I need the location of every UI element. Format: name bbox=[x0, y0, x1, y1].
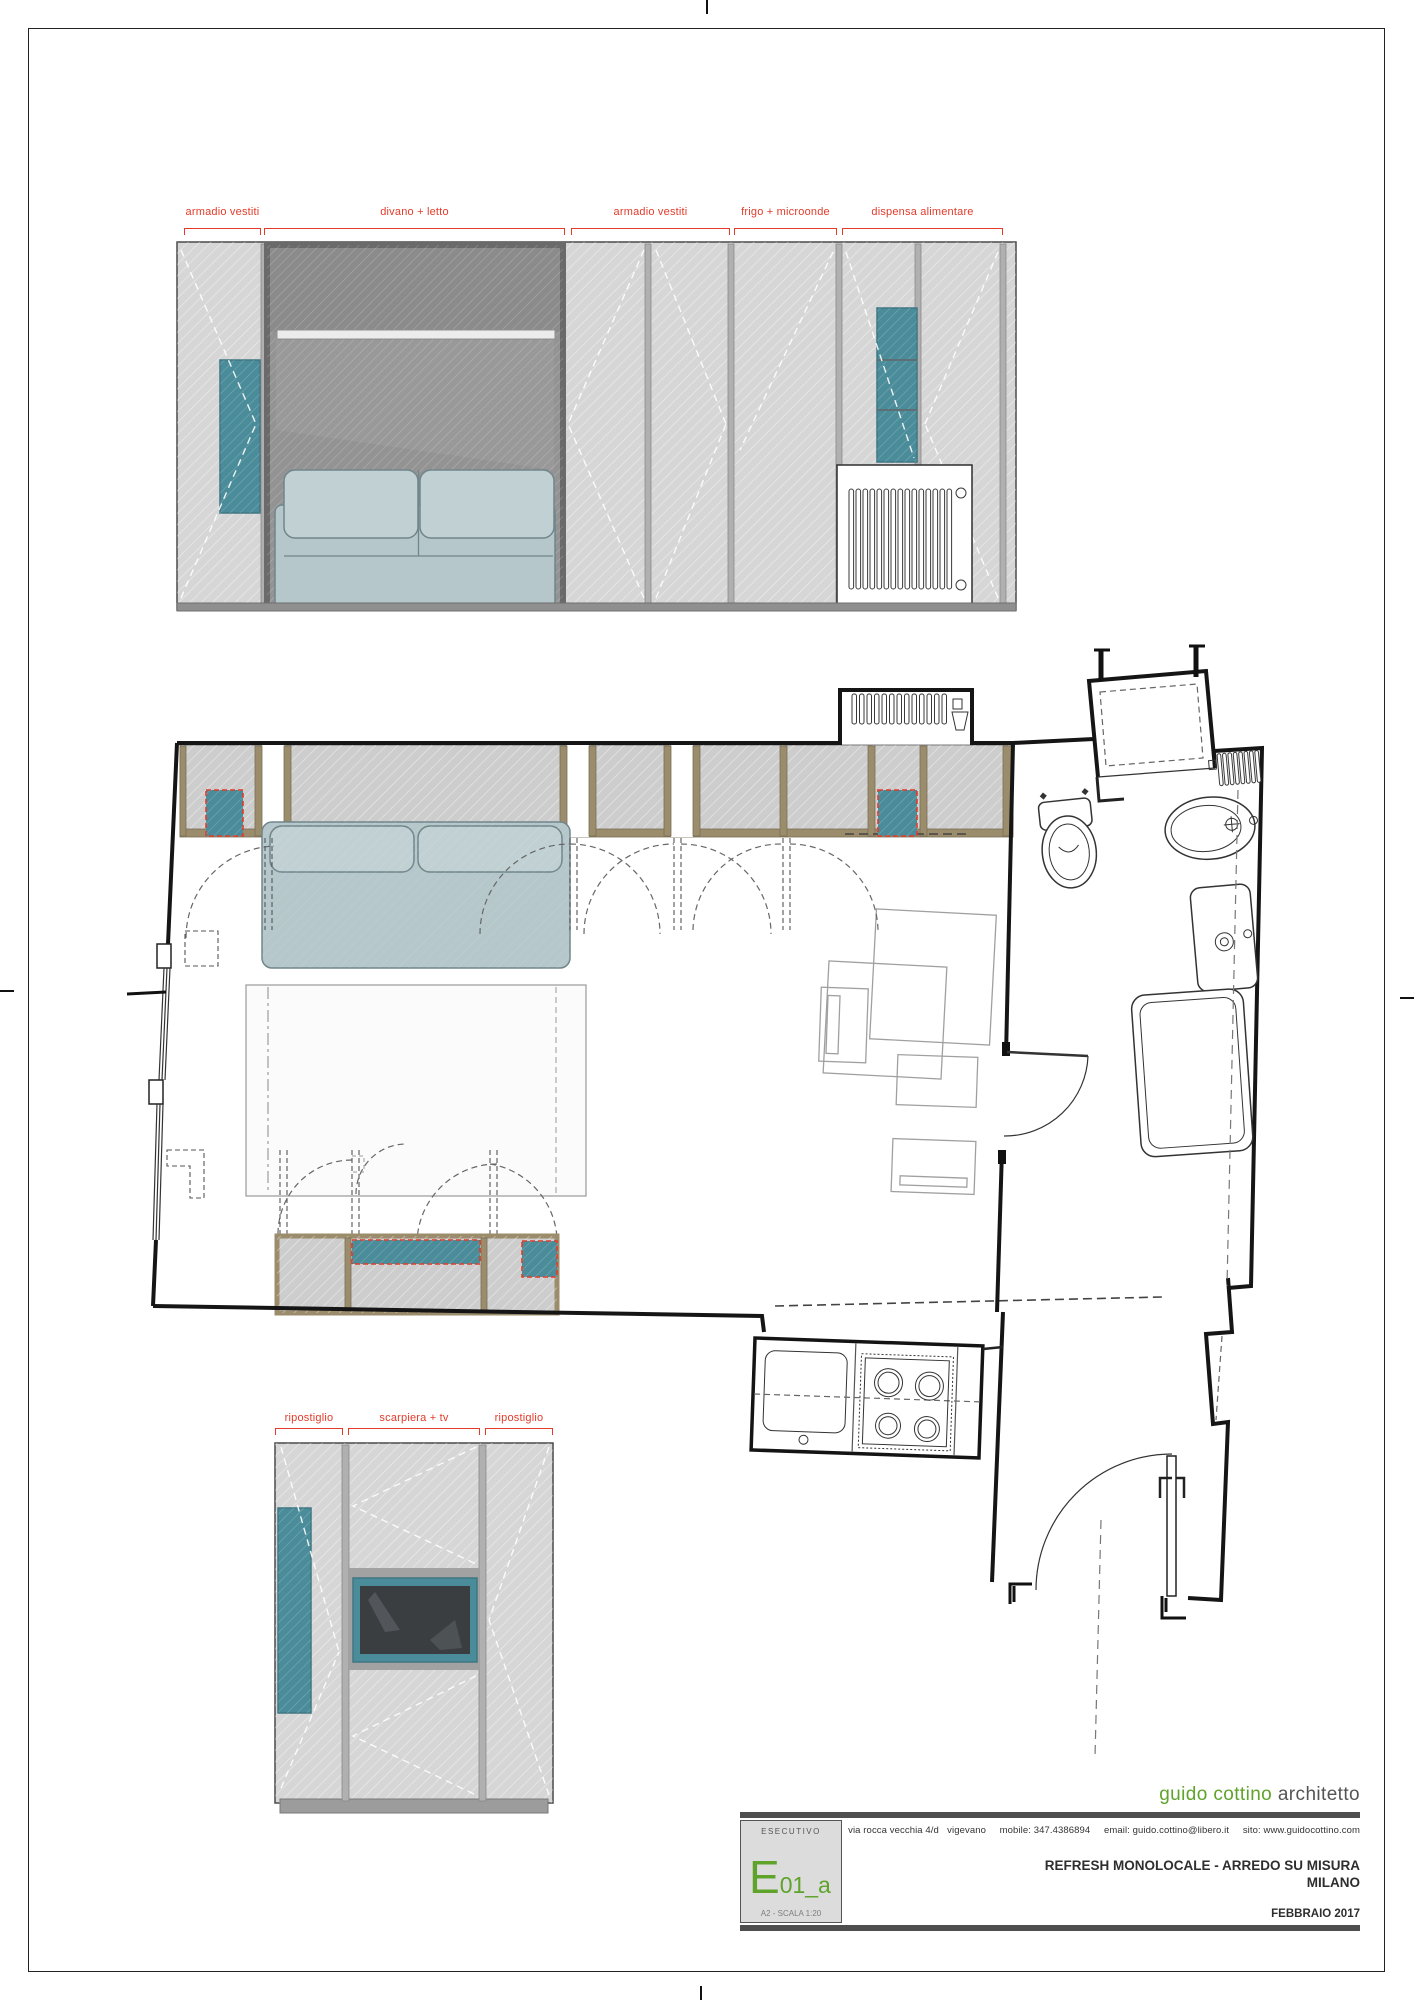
left-wall-dashed-outlines bbox=[167, 931, 218, 1198]
plan-teal-shelf-left bbox=[206, 790, 243, 836]
label-bracket bbox=[485, 1428, 553, 1436]
label-frigo-microonde: frigo + microonde bbox=[734, 206, 837, 218]
window-hardware bbox=[149, 1080, 163, 1104]
titleblock-rule-top bbox=[740, 1812, 1360, 1818]
drawing-date: FEBBRAIO 2017 bbox=[1271, 1908, 1360, 1920]
label-scarpiera-tv: scarpiera + tv bbox=[348, 1412, 480, 1424]
corridor-centerline bbox=[1095, 1520, 1101, 1757]
open-shelf-pantry bbox=[877, 308, 917, 462]
sofa-elevation bbox=[275, 470, 555, 608]
plan-radiator-alcove bbox=[852, 694, 968, 730]
vanity bbox=[1190, 883, 1259, 992]
label-dispensa-alimentare: dispensa alimentare bbox=[842, 206, 1003, 218]
plan-teal-shelf-pantry bbox=[878, 790, 917, 836]
studio-role: architetto bbox=[1278, 1784, 1360, 1805]
table-and-chairs bbox=[819, 909, 997, 1195]
drawing-code-letter: E bbox=[749, 1851, 780, 1903]
bathroom-door bbox=[998, 1042, 1088, 1164]
elevation-top-drawing bbox=[177, 242, 1016, 611]
toilet bbox=[1036, 788, 1100, 891]
studio-contact-line: via rocca vecchia 4/d vigevano mobile: 3… bbox=[848, 1825, 1360, 1836]
wall-tick bbox=[127, 992, 166, 994]
label-bracket bbox=[184, 228, 261, 236]
sofa-plan bbox=[262, 822, 570, 968]
label-bracket bbox=[734, 228, 837, 236]
label-bracket bbox=[275, 1428, 343, 1436]
plan-and-elevations-drawing bbox=[0, 0, 1414, 2000]
format-scale: A2 - SCALA 1:20 bbox=[741, 1909, 841, 1918]
window-hardware bbox=[157, 944, 171, 968]
label-bracket bbox=[264, 228, 565, 236]
label-divano-letto: divano + letto bbox=[264, 206, 565, 218]
bed-footprint bbox=[246, 985, 586, 1196]
radiator-elevation bbox=[837, 465, 972, 610]
project-title-line2: MILANO bbox=[1045, 1875, 1360, 1892]
titleblock-rule-bottom bbox=[740, 1925, 1360, 1931]
studio-name: guido cottino bbox=[1159, 1784, 1272, 1805]
drawing-code: E01_a bbox=[749, 1854, 831, 1900]
open-shelf-bottom bbox=[278, 1508, 311, 1713]
drawing-sheet: armadio vestiti divano + letto armadio v… bbox=[0, 0, 1414, 2000]
studio-logo: guido cottino architetto bbox=[1159, 1784, 1360, 1806]
bathtub bbox=[1131, 988, 1254, 1157]
tv-elevation bbox=[349, 1568, 479, 1670]
drawing-stamp: ESECUTIVO E01_a A2 - SCALA 1:20 bbox=[740, 1820, 842, 1923]
sink bbox=[1162, 793, 1260, 863]
label-armadio-vestiti-2: armadio vestiti bbox=[571, 206, 730, 218]
drawing-code-suffix: 01_a bbox=[780, 1872, 831, 1898]
project-title-line1: REFRESH MONOLOCALE - ARREDO SU MISURA bbox=[1045, 1858, 1360, 1875]
label-bracket bbox=[842, 228, 1003, 236]
project-title: REFRESH MONOLOCALE - ARREDO SU MISURA MI… bbox=[1045, 1858, 1360, 1892]
kitchen-block bbox=[751, 1338, 983, 1458]
plan-tv bbox=[352, 1240, 480, 1264]
elevation-bottom-drawing bbox=[275, 1443, 553, 1813]
label-armadio-vestiti-1: armadio vestiti bbox=[184, 206, 261, 218]
label-ripostiglio-2: ripostiglio bbox=[485, 1412, 553, 1424]
entrance-door bbox=[1010, 1454, 1186, 1618]
open-shelf-left bbox=[220, 360, 260, 513]
label-ripostiglio-1: ripostiglio bbox=[275, 1412, 343, 1424]
drawing-phase: ESECUTIVO bbox=[741, 1827, 841, 1836]
label-bracket bbox=[571, 228, 730, 236]
label-bracket bbox=[348, 1428, 480, 1436]
